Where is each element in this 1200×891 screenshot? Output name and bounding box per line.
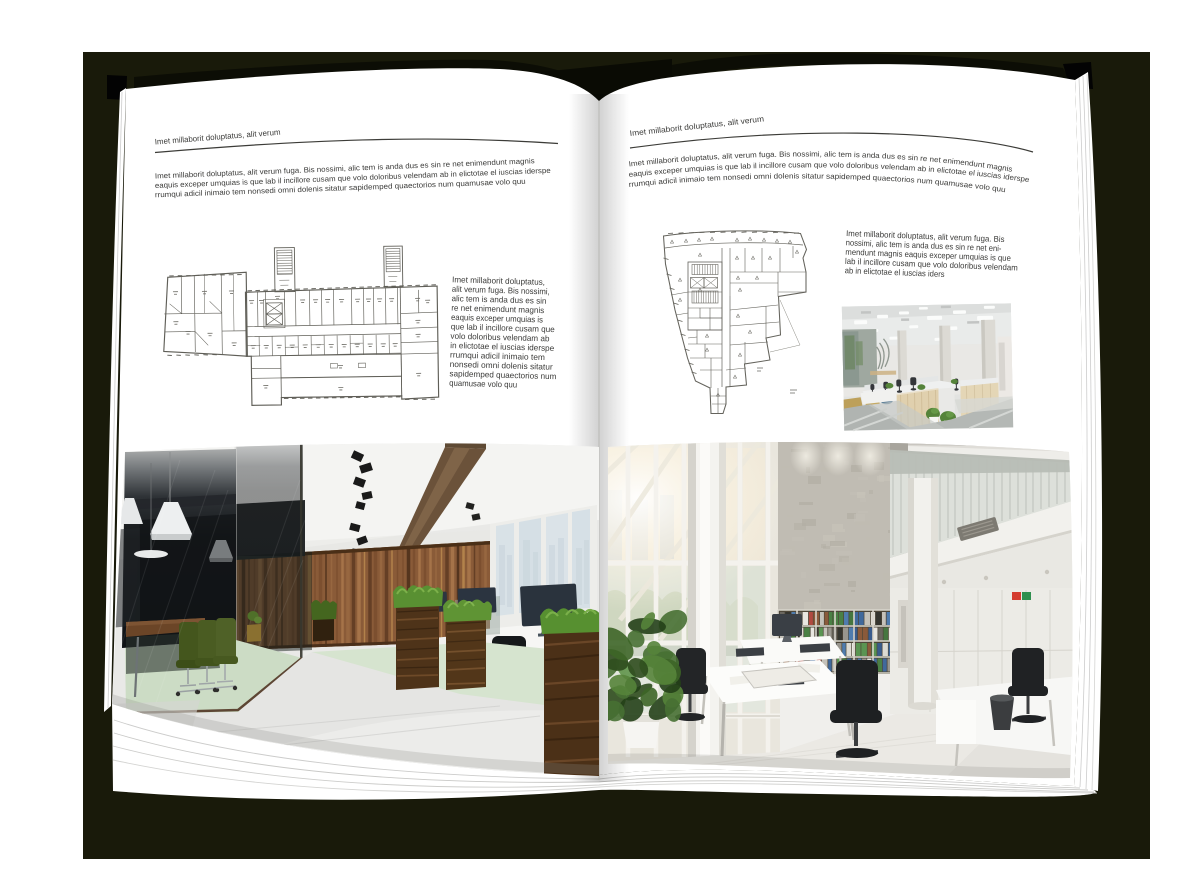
svg-text:quamusae volo quu: quamusae volo quu: [449, 378, 518, 390]
